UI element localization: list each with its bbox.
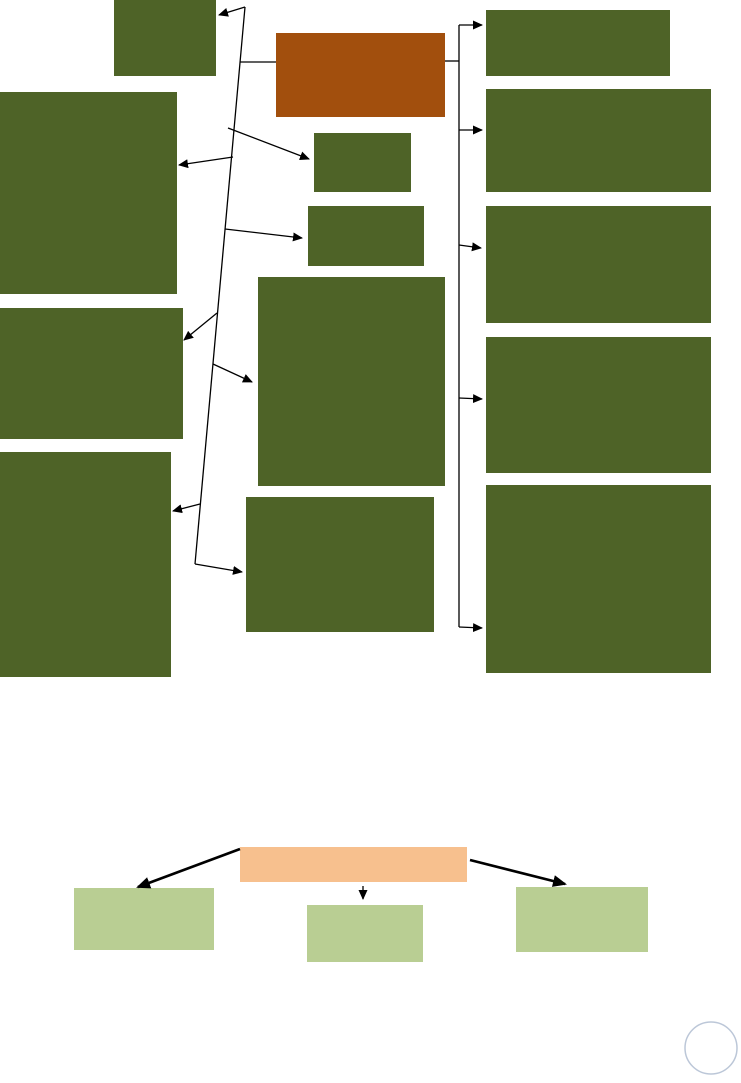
light-green-box-1 <box>74 888 214 950</box>
edge-spine-to-mid-large-box <box>213 364 252 382</box>
edge-spine-to-right-box-3 <box>459 245 481 248</box>
edge-peach-to-light-green-box-3 <box>470 860 565 884</box>
edge-spine-to-mid-bottom-box <box>195 564 242 572</box>
peach-bar <box>240 847 467 882</box>
left-box-1 <box>0 92 177 294</box>
left-box-2 <box>0 308 183 439</box>
edge-spine-to-right-box-4 <box>459 398 482 399</box>
edge-spine-to-top-center-box <box>219 7 245 15</box>
mid-small-box-2 <box>308 206 424 266</box>
document-page <box>0 0 741 1083</box>
right-box-4 <box>486 337 711 473</box>
edge-spine-to-right-box-5 <box>459 627 482 628</box>
edge-spine-to-left-box-3 <box>173 504 200 511</box>
mid-small-box-1 <box>314 133 411 192</box>
left-box-3 <box>0 452 171 677</box>
edge-spine-to-left-box-1 <box>179 157 233 165</box>
light-green-box-3 <box>516 887 648 952</box>
mid-large-box <box>258 277 445 486</box>
top-center-box <box>114 0 216 76</box>
edge-peach-to-light-green-box-1 <box>138 849 240 887</box>
edge-spine-to-mid-small-box-1 <box>228 128 309 159</box>
mid-bottom-box <box>246 497 434 632</box>
right-box-5 <box>486 485 711 673</box>
edge-spine-to-left-box-2 <box>184 313 217 340</box>
right-box-2 <box>486 89 711 192</box>
spine-left-slanted-line <box>195 7 245 564</box>
edge-spine-to-mid-small-box-2 <box>225 229 302 238</box>
right-box-3 <box>486 206 711 323</box>
right-box-1 <box>486 10 670 76</box>
circle-shape <box>685 1022 737 1074</box>
brown-box <box>276 33 445 117</box>
light-green-box-2 <box>307 905 423 962</box>
